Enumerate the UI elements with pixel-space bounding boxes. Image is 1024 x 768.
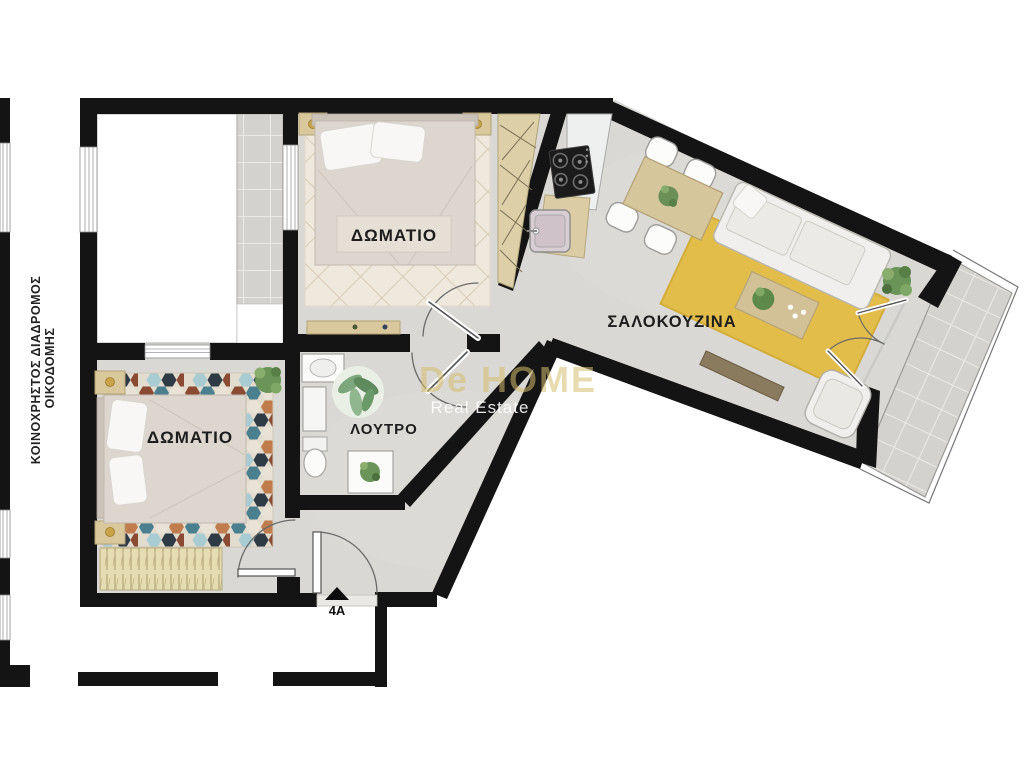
- wall-bottom-left: [80, 593, 317, 607]
- wall-bathroom-top: [300, 334, 410, 352]
- window-voidroom-left: [80, 147, 97, 232]
- window-bedroom1-left: [283, 145, 298, 230]
- wall-corridor-bottom-2: [273, 672, 387, 686]
- pillow-icon: [106, 399, 149, 454]
- lightwell-tiles: [237, 114, 283, 304]
- watermark-line2: Real Estate: [431, 398, 530, 417]
- pillow-icon: [108, 454, 148, 506]
- wardrobe-icon: [100, 548, 222, 590]
- floor-plan-canvas: ΔΩΜΑΤΙΟ: [0, 0, 1024, 768]
- window-bedroom2-top: [145, 345, 210, 358]
- wall-top: [80, 98, 613, 114]
- corridor-label-line2: ΟΙΚΟΔΟΜΗΣ: [43, 328, 57, 409]
- bedroom2-label: ΔΩΜΑΤΙΟ: [147, 428, 233, 447]
- bedroom1-label: ΔΩΜΑΤΙΟ: [351, 226, 437, 245]
- entrance-unit-label: 4A: [329, 603, 346, 618]
- toilet-icon: [303, 437, 327, 477]
- void-room: [97, 114, 237, 343]
- palm-rug-icon: [332, 366, 384, 418]
- plant-icon: [882, 266, 912, 296]
- watermark-line1: De HOME: [419, 359, 597, 400]
- floor-plan: ΔΩΜΑΤΙΟ: [0, 0, 1024, 768]
- corridor-label-line1: ΚΟΙΝΟΧΡΗΣΤΟΣ ΔΙΑΔΡΟΜΟΣ: [29, 276, 43, 464]
- wall-left: [80, 345, 97, 607]
- stove-icon: [549, 145, 595, 198]
- bathroom-label: ΛΟΥΤΡΟ: [350, 421, 418, 438]
- living-kitchen-label: ΣΑΛΟΚΟΥΖΙΝΑ: [607, 313, 736, 331]
- wall-bathroom-bottom: [292, 495, 405, 510]
- bath-cabinet-icon: [303, 387, 326, 431]
- wall-corridor-bottom-1: [78, 672, 218, 686]
- bedroom1: ΔΩΜΑΤΙΟ: [299, 113, 491, 334]
- shower-icon: [348, 451, 393, 493]
- pillow-icon: [370, 121, 426, 163]
- wall-bedroom2-east: [285, 334, 300, 518]
- bed2-icon: [95, 371, 246, 544]
- sink-icon: [527, 210, 570, 252]
